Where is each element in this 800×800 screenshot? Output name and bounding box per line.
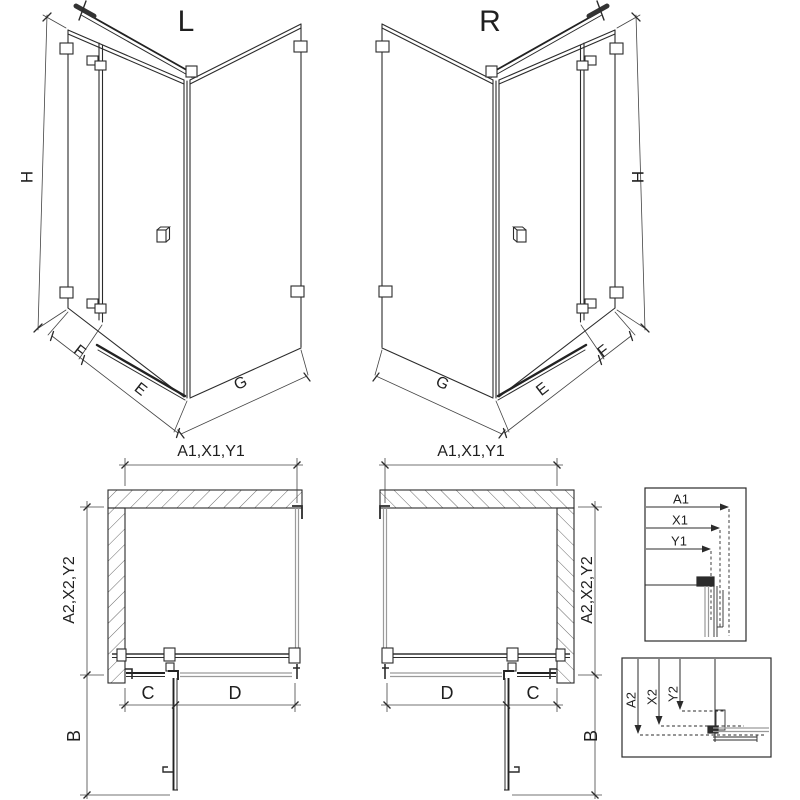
detail-box-depth — [622, 658, 771, 757]
technical-drawing-canvas — [0, 0, 800, 800]
view-title-left: L — [178, 7, 195, 37]
dim-label-height-left: H — [19, 171, 36, 183]
perspective-view-left-drawing — [34, 1, 310, 438]
detail-label-x1: X1 — [672, 514, 688, 527]
dim-label-height-right: H — [630, 171, 647, 183]
plan-view-right-drawing — [379, 458, 602, 799]
technical-drawing-page: L H F E G R H G E F A1,X1,Y1 A2,X2,Y2 C … — [0, 0, 800, 800]
dim-label-c-right: C — [527, 684, 540, 702]
perspective-view-right-drawing — [373, 1, 649, 438]
detail-box-width — [645, 488, 746, 641]
detail-label-y1: Y1 — [671, 535, 687, 548]
dim-label-width-plan-right: A1,X1,Y1 — [437, 444, 505, 460]
dim-label-width-plan-left: A1,X1,Y1 — [177, 444, 245, 460]
detail-label-x2: X2 — [646, 689, 659, 705]
dim-label-b-right: B — [582, 730, 600, 742]
dim-label-depth-plan-left: A2,X2,Y2 — [62, 556, 78, 624]
dim-label-d-right: D — [441, 684, 454, 702]
detail-label-a2: A2 — [625, 692, 638, 708]
dim-label-depth-plan-right: A2,X2,Y2 — [580, 556, 596, 624]
dim-label-c-left: C — [142, 684, 155, 702]
view-title-right: R — [479, 7, 501, 37]
dim-label-d-left: D — [229, 684, 242, 702]
plan-view-left-drawing — [80, 458, 303, 799]
detail-label-y2: Y2 — [667, 686, 680, 702]
dim-label-b-left: B — [65, 730, 83, 742]
detail-label-a1: A1 — [673, 493, 689, 506]
